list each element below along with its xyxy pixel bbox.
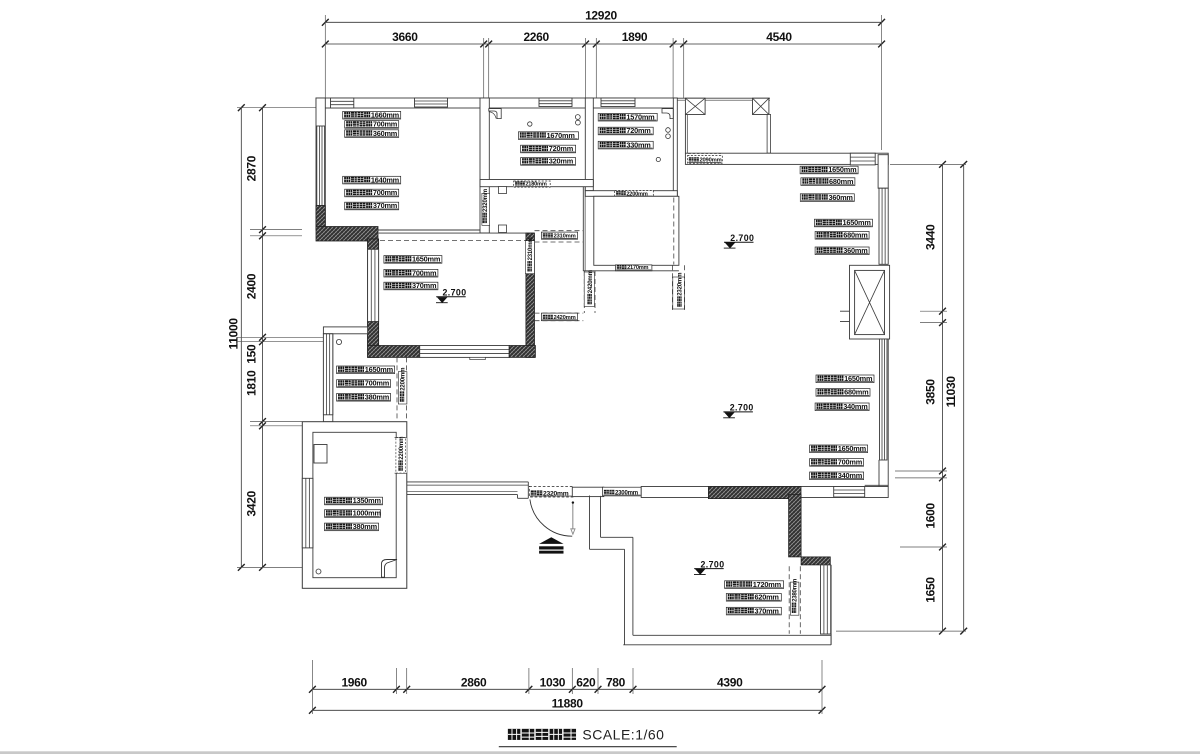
- svg-text:1810: 1810: [245, 370, 259, 396]
- svg-text:3850: 3850: [924, 379, 938, 405]
- svg-text:1890: 1890: [622, 30, 648, 44]
- svg-text:1650: 1650: [924, 577, 938, 603]
- svg-text:2420mm: 2420mm: [553, 315, 575, 321]
- svg-text:11880: 11880: [552, 697, 584, 711]
- svg-text:2870: 2870: [245, 155, 259, 181]
- svg-text:2200mm: 2200mm: [399, 437, 405, 460]
- svg-text:2180mm: 2180mm: [525, 182, 546, 188]
- svg-text:2320mm: 2320mm: [678, 273, 684, 296]
- svg-text:3420: 3420: [245, 490, 259, 516]
- svg-text:2170mm: 2170mm: [627, 265, 648, 271]
- svg-text:2310mm: 2310mm: [528, 237, 534, 260]
- svg-text:1030: 1030: [540, 676, 566, 690]
- svg-text:2.700: 2.700: [443, 288, 467, 298]
- svg-text:4390: 4390: [717, 676, 743, 690]
- svg-text:2.700: 2.700: [701, 559, 725, 569]
- svg-text:2300mm: 2300mm: [615, 490, 638, 496]
- svg-text:2200mm: 2200mm: [400, 368, 406, 391]
- svg-text:2400: 2400: [245, 273, 259, 299]
- svg-text:2310mm: 2310mm: [553, 234, 575, 240]
- svg-text:2260: 2260: [523, 30, 549, 44]
- svg-text:620: 620: [576, 676, 596, 690]
- svg-text:12920: 12920: [585, 9, 617, 23]
- svg-text:3660: 3660: [392, 30, 418, 44]
- svg-text:150: 150: [245, 344, 259, 364]
- svg-text:11000: 11000: [227, 318, 241, 350]
- svg-text:2.700: 2.700: [730, 403, 754, 413]
- svg-text:2860: 2860: [461, 676, 487, 690]
- svg-text:1600: 1600: [924, 503, 938, 529]
- svg-text:3440: 3440: [924, 224, 938, 250]
- svg-text:1960: 1960: [341, 676, 367, 690]
- svg-text:780: 780: [606, 676, 626, 690]
- svg-text:2420mm: 2420mm: [588, 270, 594, 293]
- svg-text:2320mm: 2320mm: [483, 189, 489, 212]
- svg-text:SCALE:1/60: SCALE:1/60: [582, 727, 664, 743]
- svg-text:2380mm: 2380mm: [792, 579, 798, 602]
- svg-text:2.700: 2.700: [730, 233, 754, 243]
- svg-text:11030: 11030: [944, 376, 958, 408]
- svg-text:2090mm: 2090mm: [699, 158, 721, 164]
- svg-text:4540: 4540: [766, 30, 792, 44]
